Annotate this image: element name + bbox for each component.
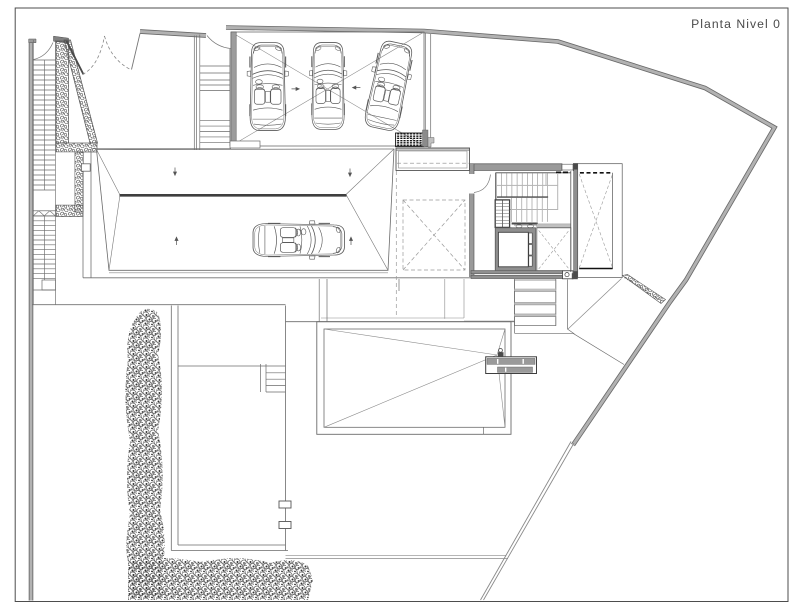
svg-text:Planta Nivel 0: Planta Nivel 0 — [691, 17, 781, 31]
